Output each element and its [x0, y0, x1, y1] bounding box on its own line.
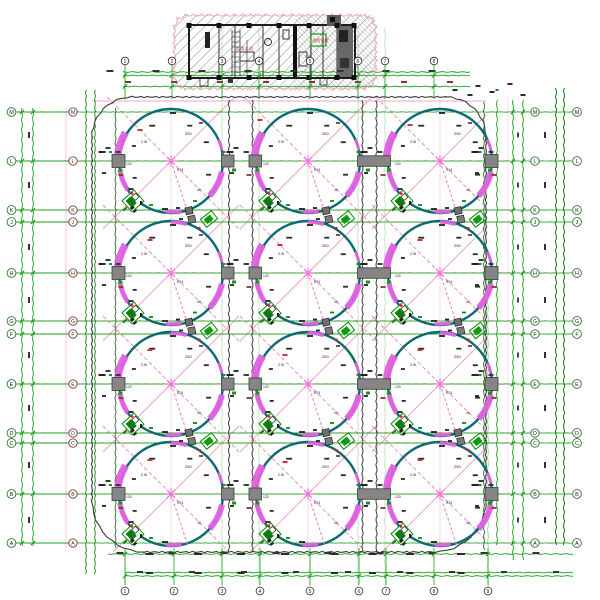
svg-text:40: 40 — [466, 411, 470, 415]
svg-text:J: J — [576, 220, 579, 226]
svg-text:E: E — [575, 382, 579, 388]
svg-text:R24: R24 — [446, 501, 452, 505]
svg-text:250: 250 — [454, 243, 461, 248]
svg-text:J: J — [10, 220, 13, 226]
svg-text:2.5t: 2.5t — [141, 140, 147, 144]
svg-text:R24: R24 — [177, 501, 183, 505]
svg-text:C: C — [533, 441, 537, 447]
svg-text:K: K — [575, 208, 579, 214]
svg-text:250: 250 — [185, 354, 192, 359]
svg-text:H: H — [71, 271, 75, 277]
svg-text:2.5t: 2.5t — [410, 140, 416, 144]
svg-text:7: 7 — [385, 589, 388, 595]
svg-text:2.5t: 2.5t — [278, 140, 284, 144]
svg-text:R24: R24 — [314, 391, 320, 395]
svg-text:F: F — [533, 332, 536, 338]
svg-text:40: 40 — [334, 300, 338, 304]
svg-text:R24: R24 — [177, 280, 183, 284]
svg-text:2: 2 — [173, 589, 176, 595]
svg-text:R24: R24 — [314, 280, 320, 284]
svg-text:F: F — [71, 332, 74, 338]
svg-text:R24: R24 — [314, 501, 320, 505]
svg-text:5: 5 — [309, 589, 312, 595]
svg-text:回用水池: 回用水池 — [236, 45, 254, 52]
svg-text:40: 40 — [334, 411, 338, 415]
svg-text:8: 8 — [433, 589, 436, 595]
svg-text:2.5t: 2.5t — [278, 252, 284, 256]
svg-text:120: 120 — [126, 274, 132, 278]
svg-text:120: 120 — [126, 495, 132, 499]
svg-text:5: 5 — [309, 59, 312, 65]
svg-text:120: 120 — [263, 274, 269, 278]
svg-text:K: K — [71, 208, 75, 214]
svg-text:3: 3 — [221, 59, 224, 65]
svg-text:250: 250 — [322, 354, 329, 359]
svg-text:6: 6 — [357, 59, 360, 65]
svg-text:2.5t: 2.5t — [141, 473, 147, 477]
svg-text:H: H — [575, 271, 579, 277]
svg-text:D: D — [10, 431, 14, 437]
svg-text:120: 120 — [263, 162, 269, 166]
svg-text:9: 9 — [487, 589, 490, 595]
svg-text:2.5t: 2.5t — [410, 363, 416, 367]
svg-text:2.5t: 2.5t — [141, 363, 147, 367]
svg-text:40: 40 — [466, 300, 470, 304]
svg-text:1: 1 — [124, 589, 127, 595]
svg-text:J: J — [72, 220, 75, 226]
svg-text:L: L — [575, 159, 578, 165]
svg-text:C: C — [10, 441, 14, 447]
svg-text:G: G — [575, 319, 579, 325]
svg-text:40: 40 — [197, 300, 201, 304]
svg-text:4: 4 — [259, 589, 262, 595]
svg-text:H: H — [533, 271, 537, 277]
svg-text:40: 40 — [197, 411, 201, 415]
svg-text:L: L — [10, 159, 13, 165]
svg-text:E: E — [10, 382, 14, 388]
svg-text:40: 40 — [334, 188, 338, 192]
svg-text:消防泵房: 消防泵房 — [312, 37, 329, 44]
svg-text:2: 2 — [171, 59, 174, 65]
svg-text:C: C — [575, 441, 579, 447]
svg-text:D: D — [575, 431, 579, 437]
svg-text:D: D — [71, 431, 75, 437]
svg-text:2.5t: 2.5t — [278, 473, 284, 477]
svg-text:8: 8 — [433, 59, 436, 65]
svg-text:E: E — [533, 382, 537, 388]
svg-text:40: 40 — [466, 521, 470, 525]
svg-text:120: 120 — [126, 162, 132, 166]
svg-text:B: B — [533, 492, 537, 498]
svg-text:2.5t: 2.5t — [141, 252, 147, 256]
svg-text:L: L — [534, 159, 537, 165]
svg-text:40: 40 — [466, 188, 470, 192]
svg-text:7: 7 — [384, 59, 387, 65]
svg-text:120: 120 — [395, 162, 401, 166]
svg-text:M: M — [533, 110, 537, 116]
svg-text:G: G — [71, 319, 75, 325]
svg-text:250: 250 — [454, 354, 461, 359]
svg-text:120: 120 — [395, 385, 401, 389]
svg-text:B: B — [71, 492, 75, 498]
svg-text:120: 120 — [263, 495, 269, 499]
svg-text:250: 250 — [322, 464, 329, 469]
svg-text:250: 250 — [454, 131, 461, 136]
svg-text:R24: R24 — [446, 280, 452, 284]
svg-text:6: 6 — [358, 589, 361, 595]
svg-text:A: A — [575, 541, 579, 547]
svg-text:R24: R24 — [446, 391, 452, 395]
svg-text:120: 120 — [263, 385, 269, 389]
svg-text:250: 250 — [322, 243, 329, 248]
svg-text:120: 120 — [126, 385, 132, 389]
svg-text:2.5t: 2.5t — [410, 473, 416, 477]
svg-text:R24: R24 — [446, 168, 452, 172]
svg-text:B: B — [10, 492, 14, 498]
svg-text:2.5t: 2.5t — [278, 363, 284, 367]
svg-text:K: K — [10, 208, 14, 214]
svg-text:250: 250 — [454, 464, 461, 469]
svg-text:R24: R24 — [177, 168, 183, 172]
svg-text:R24: R24 — [177, 391, 183, 395]
svg-text:B: B — [575, 492, 579, 498]
svg-text:4: 4 — [258, 59, 261, 65]
svg-text:H: H — [10, 271, 14, 277]
svg-text:K: K — [533, 208, 537, 214]
svg-text:J: J — [534, 220, 537, 226]
svg-text:120: 120 — [395, 274, 401, 278]
svg-text:120: 120 — [395, 495, 401, 499]
svg-text:250: 250 — [322, 131, 329, 136]
svg-text:A: A — [10, 541, 14, 547]
svg-text:40: 40 — [197, 521, 201, 525]
svg-text:R24: R24 — [314, 168, 320, 172]
svg-text:E: E — [71, 382, 75, 388]
svg-text:A: A — [533, 541, 537, 547]
svg-text:G: G — [9, 319, 13, 325]
svg-text:C: C — [71, 441, 75, 447]
svg-text:M: M — [71, 110, 75, 116]
svg-text:40: 40 — [334, 521, 338, 525]
svg-text:A: A — [71, 541, 75, 547]
svg-text:250: 250 — [185, 243, 192, 248]
svg-text:G: G — [533, 319, 537, 325]
svg-text:D: D — [533, 431, 537, 437]
svg-text:M: M — [9, 110, 14, 116]
svg-text:1: 1 — [124, 59, 127, 65]
svg-text:2.5t: 2.5t — [410, 252, 416, 256]
svg-text:40: 40 — [197, 188, 201, 192]
svg-text:3: 3 — [221, 589, 224, 595]
svg-text:M: M — [575, 110, 580, 116]
svg-text:250: 250 — [185, 464, 192, 469]
svg-text:250: 250 — [185, 131, 192, 136]
svg-text:L: L — [72, 159, 75, 165]
